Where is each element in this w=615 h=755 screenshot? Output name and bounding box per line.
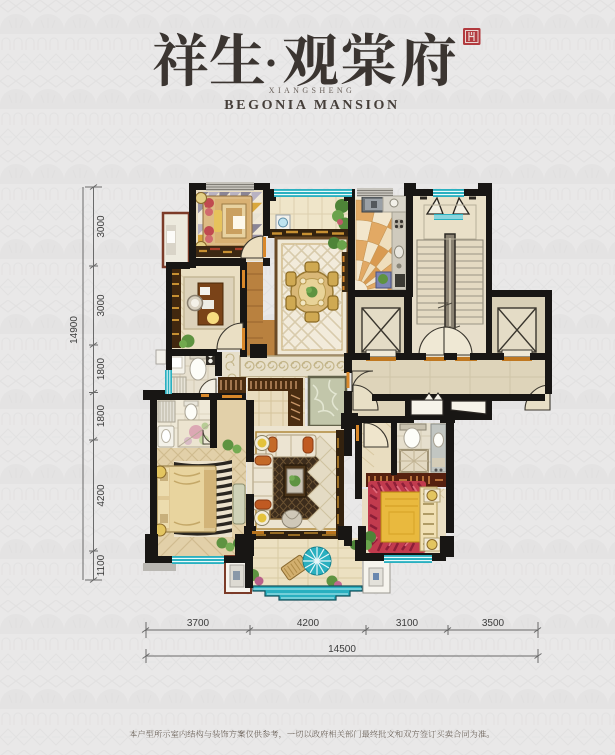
- svg-text:1100: 1100: [96, 554, 107, 576]
- svg-text:3100: 3100: [396, 618, 419, 629]
- svg-text:3700: 3700: [187, 618, 210, 629]
- svg-text:14500: 14500: [328, 644, 356, 655]
- svg-text:3000: 3000: [96, 215, 107, 238]
- svg-text:3500: 3500: [482, 618, 505, 629]
- svg-text:4200: 4200: [297, 618, 320, 629]
- svg-text:BEGONIA MANSION: BEGONIA MANSION: [224, 98, 400, 113]
- svg-text:4200: 4200: [96, 484, 107, 507]
- svg-text:1800: 1800: [96, 404, 107, 427]
- svg-text:3000: 3000: [96, 294, 107, 317]
- svg-text:14900: 14900: [69, 316, 80, 344]
- svg-text:XIANGSHENG: XIANGSHENG: [269, 86, 355, 95]
- svg-text:1800: 1800: [96, 357, 107, 380]
